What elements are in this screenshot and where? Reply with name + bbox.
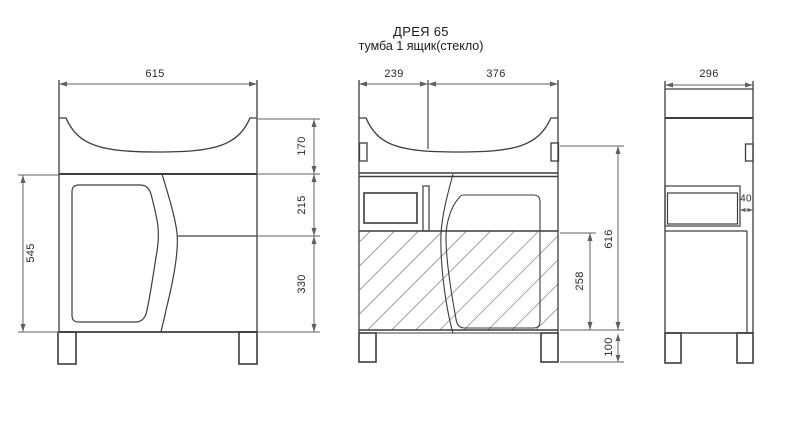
section-view [359,80,559,362]
side-bracket [746,144,754,161]
section-leg-left [359,333,376,362]
dim-mid-carcass-height: 616 [603,229,615,248]
dim-front-sink-height: 170 [296,136,308,155]
hatch-area [359,231,558,330]
side-leg-front [665,333,681,363]
drawer-inner-box [364,193,417,223]
technical-drawing-sheet: ДРЕЯ 65 тумба 1 ящик(стекло) 615 170 215… [0,0,800,436]
dim-front-lower-height: 330 [296,274,308,293]
dim-mid-leg-height: 100 [603,337,615,356]
glass-door-panel [72,185,158,322]
drawer-side-outer [665,186,740,226]
dim-mid-right-width: 376 [486,68,505,80]
drawing-subtitle: тумба 1 ящик(стекло) [359,40,484,52]
dim-mid-hatch-height: 258 [574,271,586,290]
drawer-side-inner [668,193,738,224]
dim-front-body-height: 545 [25,243,37,262]
title-block: ДРЕЯ 65 тумба 1 ящик(стекло) [359,26,484,52]
side-leg-back [737,333,753,363]
front-leg-left [58,332,76,364]
dim-front-width: 615 [145,68,164,80]
dim-side-gap: 40 [740,194,752,205]
drawing-title: ДРЕЯ 65 [359,26,484,38]
divider-bar [423,186,429,231]
drawing-geometry [0,0,800,436]
side-view [665,81,753,363]
section-leg-right [541,333,558,362]
dim-front-drawer-height: 215 [296,195,308,214]
front-view [58,80,257,364]
front-leg-right [239,332,257,364]
dim-side-depth: 296 [699,68,718,80]
dim-mid-left-width: 239 [384,68,403,80]
side-bracket-left [360,143,368,161]
